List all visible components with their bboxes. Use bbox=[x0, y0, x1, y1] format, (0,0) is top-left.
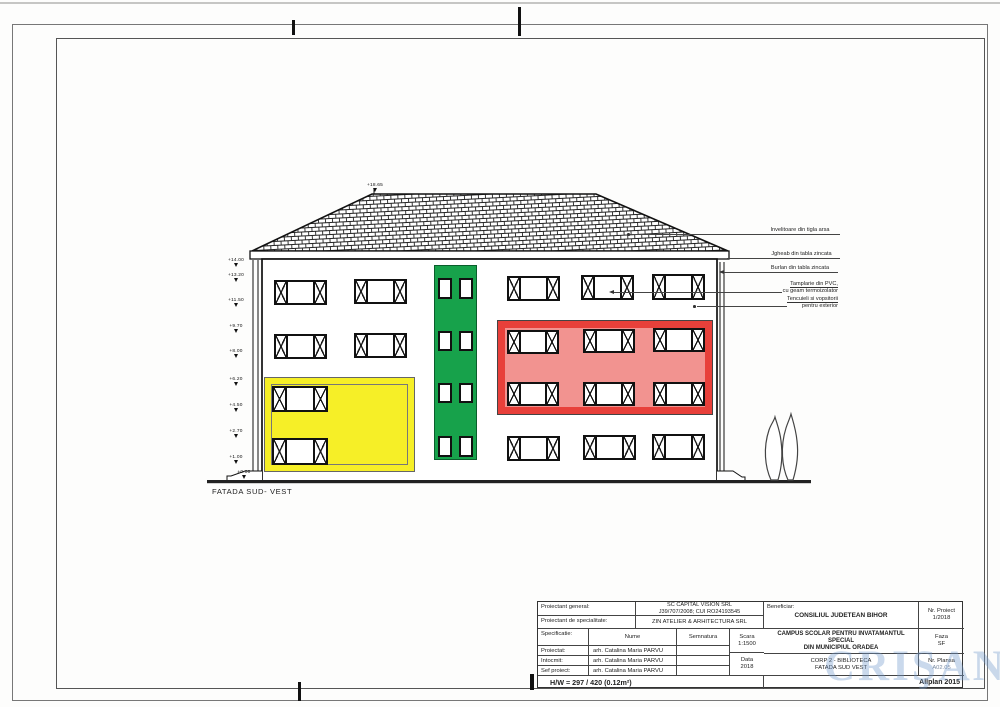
window bbox=[354, 279, 407, 304]
window bbox=[583, 329, 635, 353]
level-marker: +13.20 bbox=[222, 273, 250, 282]
annotation-plaster: Tencuieli si vopsitorii pentru exterior bbox=[763, 296, 838, 309]
casement-pane bbox=[623, 331, 633, 351]
scan-edge-artifact bbox=[0, 2, 1000, 4]
casement-pane bbox=[654, 436, 664, 458]
intocmit-name: arh. Catalina Maria PARVU bbox=[589, 656, 677, 666]
fold-tick-bottom bbox=[298, 682, 301, 701]
casement-pane bbox=[585, 437, 595, 458]
downspout-right bbox=[720, 262, 724, 471]
casement-pane bbox=[624, 437, 634, 458]
proiectat-name: arh. Catalina Maria PARVU bbox=[589, 646, 677, 656]
casement-pane bbox=[315, 282, 325, 303]
casement-pane bbox=[395, 281, 405, 302]
window bbox=[653, 328, 705, 352]
casement-pane bbox=[547, 384, 557, 404]
nume-header: Nume bbox=[589, 629, 677, 646]
level-marker: +6.20 bbox=[222, 377, 250, 386]
window-small bbox=[459, 436, 473, 457]
fold-tick-top-2 bbox=[518, 7, 521, 36]
title-block: Proiectant general: SC CAPITAL VISION SR… bbox=[537, 601, 963, 688]
casement-pane bbox=[356, 281, 366, 302]
fixed-pane bbox=[286, 282, 314, 303]
casement-pane bbox=[693, 276, 703, 298]
window bbox=[652, 434, 705, 460]
casement-pane bbox=[654, 276, 664, 298]
proiectant-specialitate-value: ZIN ATELIER & ARHITECTURA SRL bbox=[636, 616, 764, 629]
window bbox=[583, 382, 635, 406]
fixed-pane bbox=[285, 440, 315, 463]
casement-pane bbox=[655, 330, 665, 350]
level-marker: +8.00 bbox=[222, 349, 250, 358]
window bbox=[507, 436, 560, 461]
sef-proiect-label: Sef proiect: bbox=[538, 666, 589, 676]
fixed-pane bbox=[664, 276, 692, 298]
casement-pane bbox=[509, 278, 519, 299]
ridge-level-marker: +18.65 bbox=[361, 183, 389, 192]
beneficiar-cell: Beneficiar: CONSILIUL JUDETEAN BIHOR bbox=[764, 602, 919, 629]
fixed-pane bbox=[664, 436, 692, 458]
proiectant-general-label: Proiectant general: bbox=[538, 602, 636, 616]
proiectat-signature bbox=[677, 646, 730, 656]
proiectant-general-value: SC CAPITAL VISION SRL J39/707/2008; CUI … bbox=[636, 602, 764, 616]
annotation-roof: Invelitoare din tigla arsa bbox=[760, 227, 840, 234]
leader-dot bbox=[693, 305, 696, 308]
specificatie-header: Specificatie: bbox=[538, 629, 589, 646]
window bbox=[507, 276, 560, 301]
casement-pane bbox=[623, 384, 633, 404]
sef-proiect-signature bbox=[677, 666, 730, 676]
leader-roof bbox=[629, 234, 840, 235]
scara-cell: Scara1:1500 bbox=[730, 629, 764, 653]
fixed-pane bbox=[519, 384, 547, 404]
casement-pane bbox=[274, 388, 285, 410]
software-version: Allplan 2015 bbox=[764, 676, 964, 689]
window bbox=[274, 334, 327, 359]
casement-pane bbox=[276, 282, 286, 303]
level-marker: +9.70 bbox=[222, 324, 250, 333]
project-title-cell: CAMPUS SCOLAR PENTRU INVATAMANTUL SPECIA… bbox=[764, 629, 919, 654]
window-small bbox=[438, 331, 452, 351]
leader-dot bbox=[627, 233, 630, 236]
window bbox=[581, 275, 634, 300]
window-small bbox=[438, 278, 452, 299]
casement-pane bbox=[276, 336, 286, 357]
sef-proiect-name: arh. Catalina Maria PARVU bbox=[589, 666, 677, 676]
facade-caption: FATADA SUD- VEST bbox=[212, 487, 292, 496]
window bbox=[583, 435, 636, 460]
window bbox=[272, 386, 328, 412]
proiectant-specialitate-label: Proiectant de specialitate: bbox=[538, 616, 636, 629]
casement-pane bbox=[315, 388, 326, 410]
leader-arrow bbox=[609, 290, 614, 294]
tree bbox=[765, 417, 781, 480]
fixed-pane bbox=[285, 388, 315, 410]
data-cell: Data2018 bbox=[730, 653, 764, 676]
fixed-pane bbox=[595, 331, 623, 351]
window bbox=[354, 333, 407, 358]
casement-pane bbox=[395, 335, 405, 356]
fixed-pane bbox=[665, 330, 693, 350]
downspout-left bbox=[253, 260, 258, 471]
window bbox=[272, 438, 328, 465]
leader-joinery bbox=[614, 292, 782, 293]
casement-pane bbox=[693, 384, 703, 404]
downspout-right-shoe bbox=[717, 471, 745, 481]
casement-pane bbox=[509, 438, 519, 459]
window bbox=[507, 382, 559, 406]
semnatura-header: Semnatura bbox=[677, 629, 730, 646]
level-marker: +2.70 bbox=[222, 429, 250, 438]
faza-cell: FazaSF bbox=[919, 629, 964, 654]
fold-tick-top-1 bbox=[292, 20, 295, 35]
window-small bbox=[459, 278, 473, 299]
leader-gutter bbox=[727, 258, 840, 259]
fixed-pane bbox=[286, 336, 314, 357]
intocmit-signature bbox=[677, 656, 730, 666]
tree bbox=[782, 414, 797, 480]
casement-pane bbox=[315, 336, 325, 357]
nr-plansa-cell: Nr. PlansaA02.05 bbox=[919, 654, 964, 676]
casement-pane bbox=[622, 277, 632, 298]
casement-pane bbox=[693, 330, 703, 350]
leader-downspout bbox=[724, 272, 838, 273]
window bbox=[274, 280, 327, 305]
casement-pane bbox=[509, 332, 519, 352]
annotation-joinery: Tamplarie din PVC, cu geam termoizolator bbox=[758, 281, 838, 294]
casement-pane bbox=[547, 332, 557, 352]
fixed-pane bbox=[519, 332, 547, 352]
casement-pane bbox=[548, 438, 558, 459]
fixed-pane bbox=[665, 384, 693, 404]
casement-pane bbox=[274, 440, 285, 463]
paper-size-note: H/W = 297 / 420 (0.12m²) bbox=[538, 676, 764, 689]
level-marker: +1.00 bbox=[222, 455, 250, 464]
level-marker: +11.50 bbox=[222, 298, 250, 307]
fixed-pane bbox=[593, 277, 621, 298]
window-small bbox=[438, 436, 452, 457]
window-small bbox=[438, 383, 452, 403]
casement-pane bbox=[655, 384, 665, 404]
proiectat-label: Proiectat: bbox=[538, 646, 589, 656]
cornice bbox=[250, 251, 729, 259]
fixed-pane bbox=[595, 437, 623, 458]
casement-pane bbox=[315, 440, 326, 463]
casement-pane bbox=[548, 278, 558, 299]
casement-pane bbox=[509, 384, 519, 404]
fixed-pane bbox=[519, 438, 547, 459]
annotation-gutter: Jgheab din tabla zincata bbox=[763, 251, 840, 258]
casement-pane bbox=[356, 335, 366, 356]
intocmit-label: Intocmit: bbox=[538, 656, 589, 666]
beneficiar-value: CONSILIUL JUDETEAN BIHOR bbox=[764, 612, 918, 619]
annotation-downspout: Burlan din tabla zincata bbox=[762, 265, 838, 272]
casement-pane bbox=[585, 384, 595, 404]
ground-line bbox=[207, 480, 811, 483]
window-small bbox=[459, 383, 473, 403]
casement-pane bbox=[693, 436, 703, 458]
level-marker-zero: ±0.00 bbox=[230, 470, 258, 479]
beneficiar-label: Beneficiar: bbox=[764, 602, 918, 610]
window bbox=[652, 274, 705, 300]
window bbox=[507, 330, 559, 354]
casement-pane bbox=[583, 277, 593, 298]
fold-mark bbox=[530, 674, 534, 690]
window-small bbox=[459, 331, 473, 351]
fixed-pane bbox=[366, 281, 394, 302]
level-marker: +14.00 bbox=[222, 258, 250, 267]
plansa-title-cell: CORP 2 - BIBLIOTECAFATADA SUD VEST bbox=[764, 654, 919, 676]
leader-arrow bbox=[719, 270, 724, 274]
window bbox=[653, 382, 705, 406]
casement-pane bbox=[585, 331, 595, 351]
nr-proiect-cell: Nr. Proiect1/2018 bbox=[919, 602, 964, 629]
roof bbox=[252, 194, 728, 251]
fixed-pane bbox=[595, 384, 623, 404]
fixed-pane bbox=[519, 278, 547, 299]
fixed-pane bbox=[366, 335, 394, 356]
level-marker: +4.50 bbox=[222, 403, 250, 412]
